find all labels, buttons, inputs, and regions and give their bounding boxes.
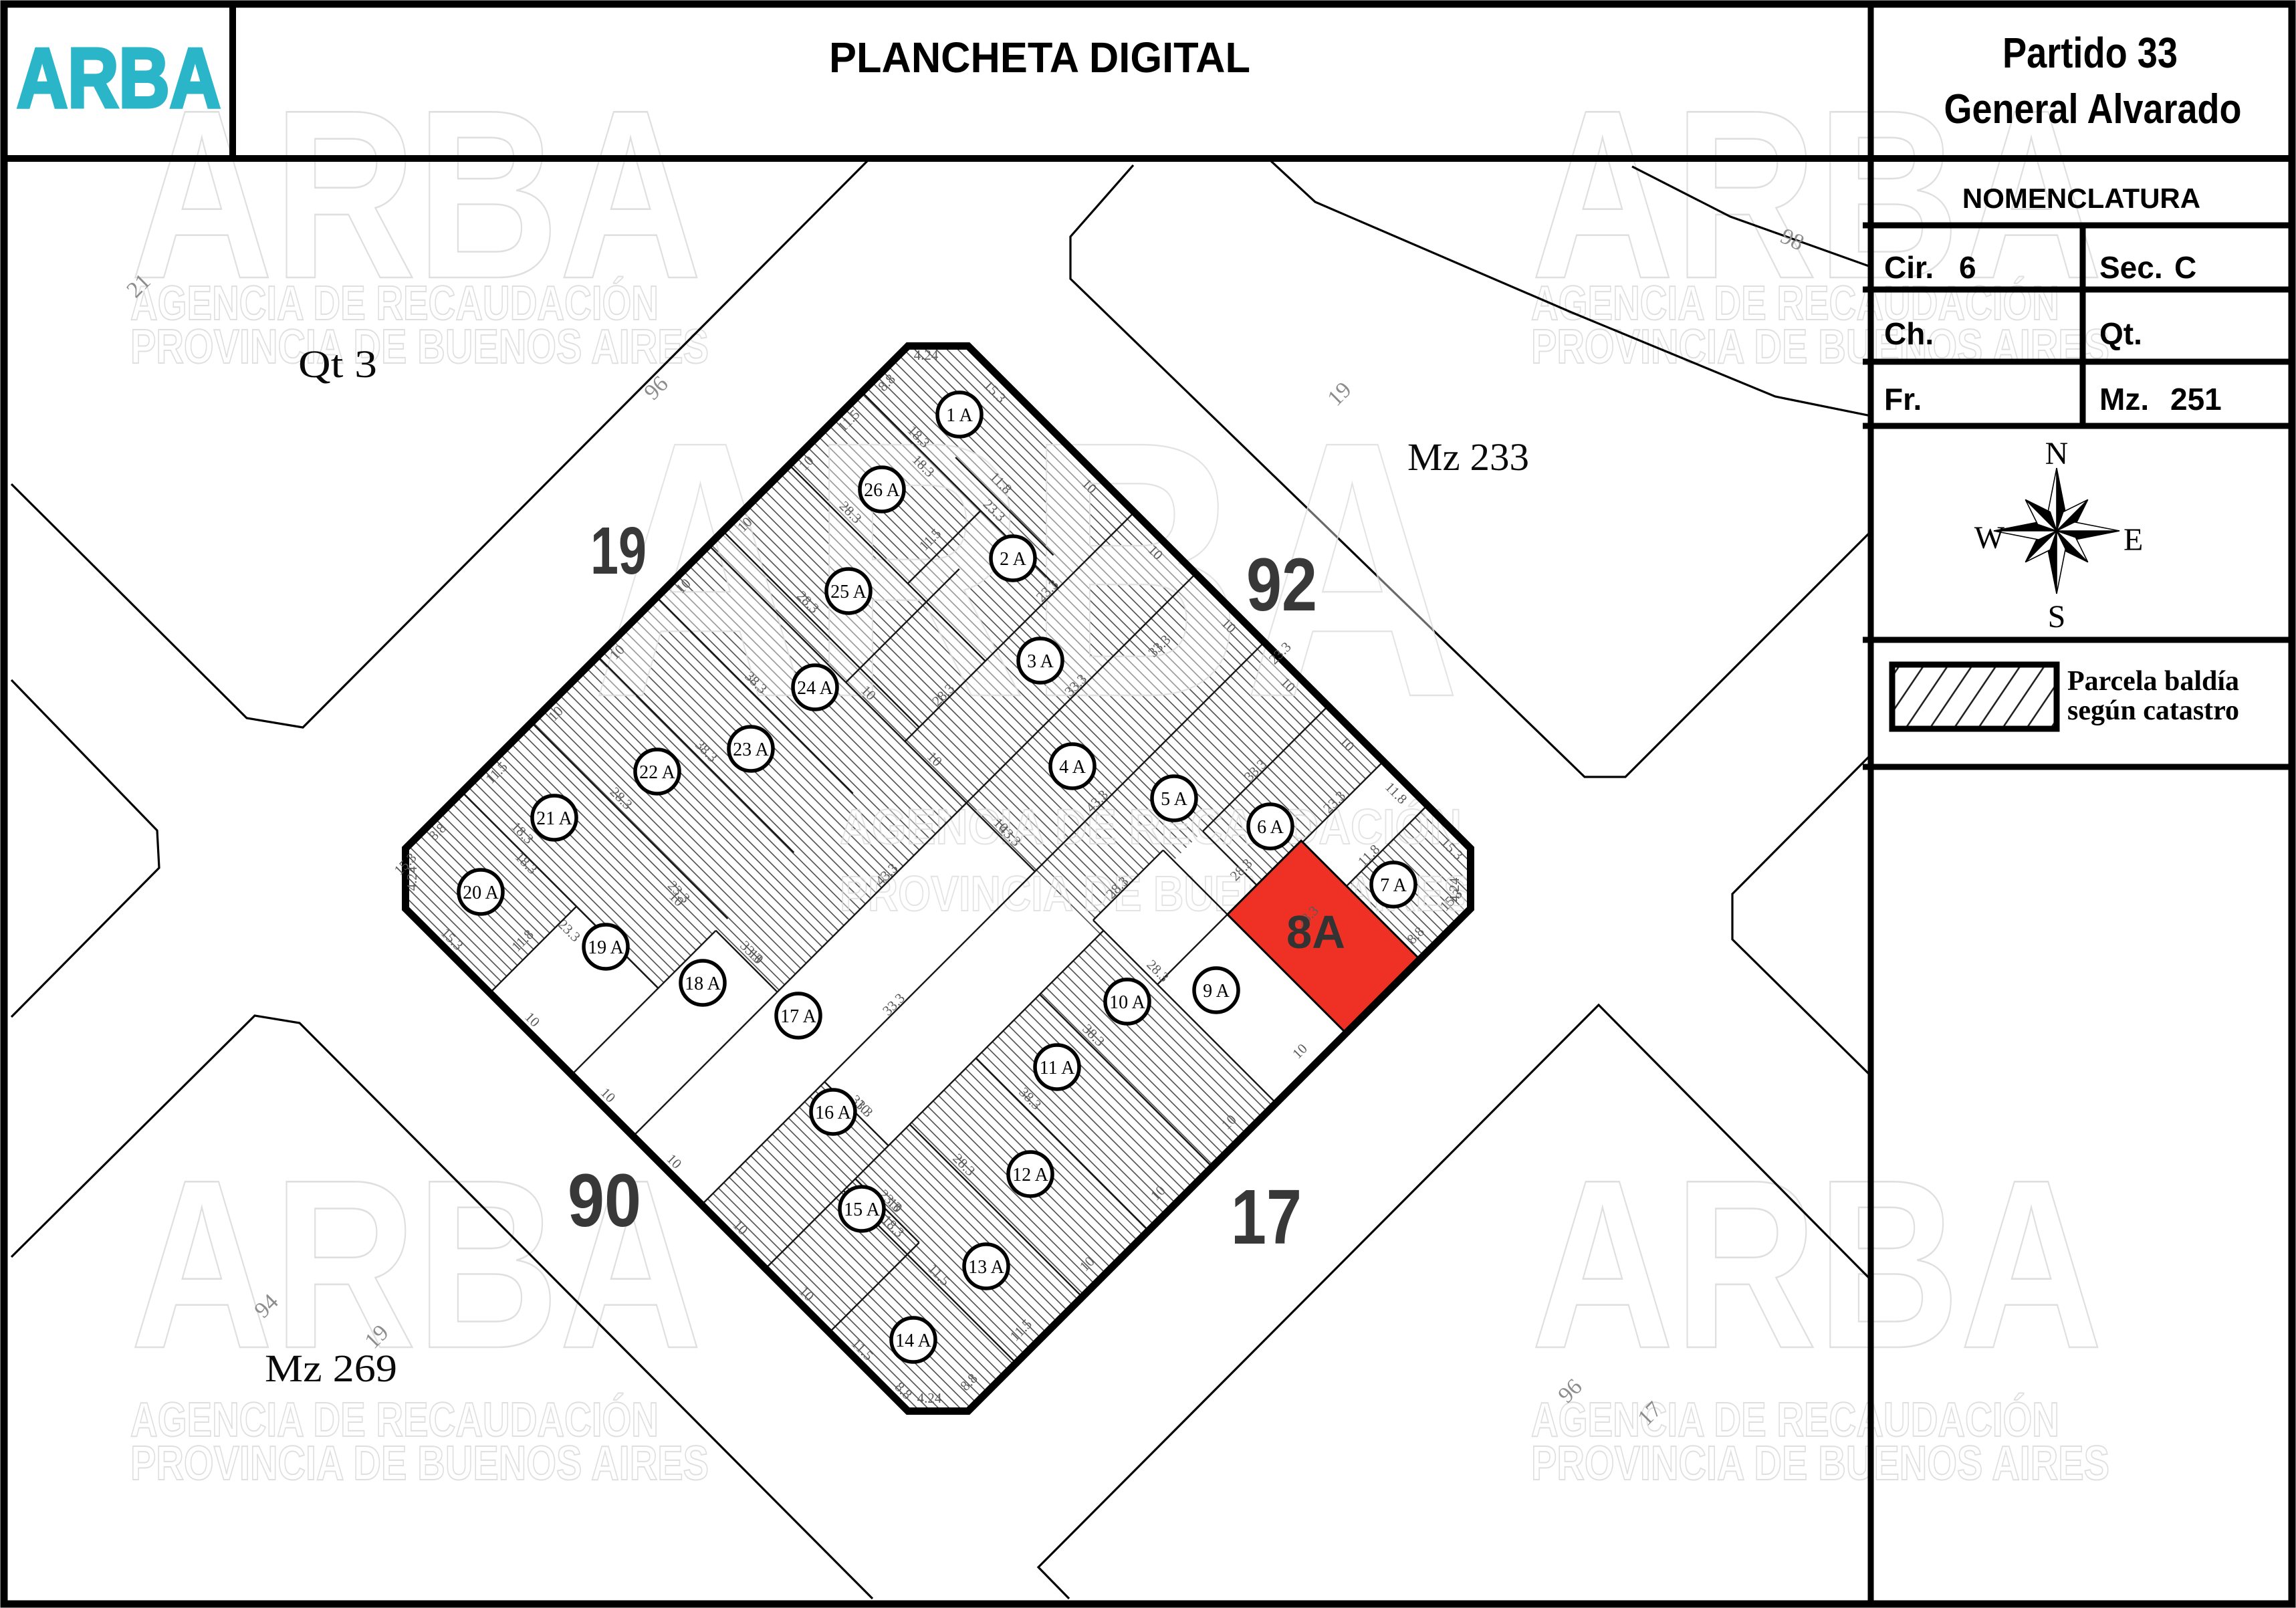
svg-text:Sec.: Sec. xyxy=(2099,250,2163,285)
svg-text:2 A: 2 A xyxy=(1000,549,1026,570)
svg-text:S: S xyxy=(2048,599,2066,635)
svg-text:1 A: 1 A xyxy=(946,405,973,426)
svg-text:Fr.: Fr. xyxy=(1884,382,1922,417)
svg-text:8A: 8A xyxy=(1286,906,1345,958)
svg-text:Qt.: Qt. xyxy=(2099,316,2142,351)
svg-text:5 A: 5 A xyxy=(1161,789,1187,810)
svg-text:19 A: 19 A xyxy=(588,937,624,958)
svg-text:7 A: 7 A xyxy=(1380,875,1407,896)
svg-text:PROVINCIA DE BUENOS AIRES: PROVINCIA DE BUENOS AIRES xyxy=(130,320,709,374)
svg-text:NOMENCLATURA: NOMENCLATURA xyxy=(1962,183,2200,214)
svg-text:23 A: 23 A xyxy=(733,739,769,760)
svg-text:PROVINCIA DE BUENOS AIRES: PROVINCIA DE BUENOS AIRES xyxy=(1531,320,2109,374)
svg-text:10 A: 10 A xyxy=(1109,992,1145,1013)
svg-text:Cir.: Cir. xyxy=(1884,250,1934,285)
svg-text:Mz 233: Mz 233 xyxy=(1407,435,1529,479)
svg-text:Qt 3: Qt 3 xyxy=(298,342,377,386)
svg-text:Partido 33: Partido 33 xyxy=(2002,29,2178,77)
svg-text:16 A: 16 A xyxy=(815,1103,851,1123)
svg-text:PROVINCIA DE BUENOS AIRES: PROVINCIA DE BUENOS AIRES xyxy=(1531,1437,2109,1490)
svg-text:Mz.: Mz. xyxy=(2099,382,2149,417)
svg-text:ARBA: ARBA xyxy=(1531,1130,2103,1399)
svg-text:17 A: 17 A xyxy=(780,1006,816,1027)
svg-text:251: 251 xyxy=(2170,382,2222,417)
svg-text:11 A: 11 A xyxy=(1040,1058,1075,1078)
svg-text:15 A: 15 A xyxy=(844,1199,880,1220)
svg-text:C: C xyxy=(2174,250,2196,285)
svg-text:ARBA: ARBA xyxy=(17,31,221,125)
svg-text:E: E xyxy=(2123,522,2143,558)
svg-text:17: 17 xyxy=(1231,1173,1302,1260)
svg-text:PLANCHETA DIGITAL: PLANCHETA DIGITAL xyxy=(829,33,1250,82)
svg-text:4.24: 4.24 xyxy=(914,347,939,363)
svg-text:24 A: 24 A xyxy=(797,678,833,699)
svg-text:4.24: 4.24 xyxy=(1446,877,1462,902)
svg-text:9 A: 9 A xyxy=(1203,981,1230,1002)
svg-text:12 A: 12 A xyxy=(1012,1165,1048,1185)
svg-text:18 A: 18 A xyxy=(685,973,721,994)
svg-text:6 A: 6 A xyxy=(1257,817,1284,838)
svg-text:6: 6 xyxy=(1959,250,1976,285)
svg-text:4 A: 4 A xyxy=(1059,757,1086,778)
svg-text:Ch.: Ch. xyxy=(1884,316,1934,351)
svg-text:19: 19 xyxy=(590,513,647,588)
svg-text:PROVINCIA DE BUENOS AIRES: PROVINCIA DE BUENOS AIRES xyxy=(130,1437,709,1490)
svg-text:3 A: 3 A xyxy=(1027,651,1054,672)
svg-text:N: N xyxy=(2045,436,2069,471)
svg-text:14 A: 14 A xyxy=(895,1331,931,1351)
svg-text:Parcela baldía: Parcela baldía xyxy=(2067,666,2239,697)
svg-text:General Alvarado: General Alvarado xyxy=(1944,86,2242,132)
svg-text:4.24: 4.24 xyxy=(917,1390,942,1406)
svg-text:92: 92 xyxy=(1246,543,1317,626)
svg-text:21 A: 21 A xyxy=(536,808,572,829)
svg-text:W: W xyxy=(1974,520,2005,556)
svg-text:26 A: 26 A xyxy=(864,480,900,501)
svg-text:4.24: 4.24 xyxy=(404,866,420,891)
svg-text:25 A: 25 A xyxy=(830,582,867,602)
svg-text:22 A: 22 A xyxy=(639,762,675,783)
svg-text:13 A: 13 A xyxy=(968,1257,1004,1278)
svg-text:según catastro: según catastro xyxy=(2067,695,2239,726)
svg-text:20 A: 20 A xyxy=(463,883,499,903)
svg-text:90: 90 xyxy=(568,1159,641,1242)
